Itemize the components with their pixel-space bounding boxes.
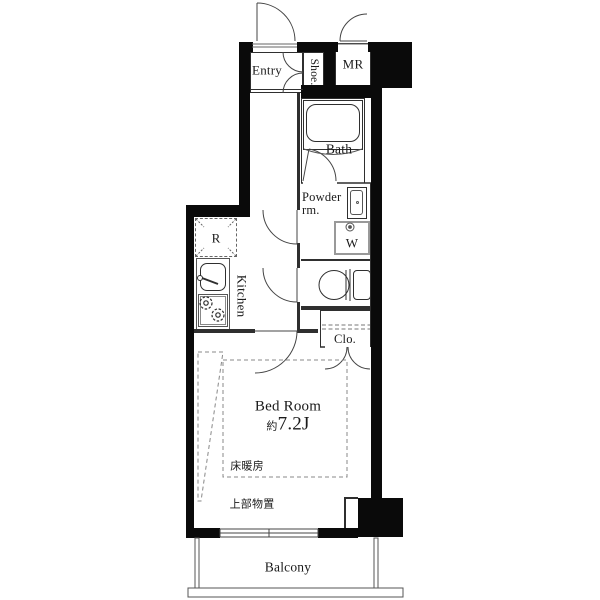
- balcony-sliding-door: [220, 529, 318, 537]
- shoe-closet-doors: [283, 52, 303, 93]
- overhead-storage-label: 上部物置: [230, 500, 275, 511]
- bath-label: Bath: [326, 142, 352, 156]
- powder-room-door: [263, 210, 297, 244]
- toilet-room-door: [263, 268, 297, 302]
- floor-heating-label: 床暖房: [230, 462, 264, 473]
- bedroom-size-value: 7.2J: [278, 414, 310, 435]
- meter-room-door: [338, 14, 368, 44]
- bedroom-size-label: 約7.2J: [266, 415, 309, 434]
- meter-room-label: MR: [343, 58, 364, 71]
- powder-room-label: Powder rm.: [302, 191, 341, 217]
- bedroom-size-prefix: 約: [266, 421, 277, 433]
- washer-tap-icon: [346, 223, 354, 231]
- washer-label: W: [346, 237, 358, 250]
- overhead-storage-area: [198, 352, 223, 501]
- kitchen-label: Kitchen: [236, 275, 249, 318]
- bedroom-label: Bed Room: [255, 400, 321, 415]
- kitchen-faucet-icon: [198, 276, 219, 285]
- floor-plan: Entry Shoe. MR Bath Powder rm. W R Kitch…: [0, 0, 600, 600]
- shoe-closet-label: Shoe.: [307, 59, 319, 86]
- bedroom-door: [255, 331, 297, 373]
- plan-linework: [0, 0, 600, 600]
- refrigerator-label: R: [212, 232, 221, 245]
- powder-room-label-line2: rm.: [302, 204, 341, 217]
- toilet-icon: [319, 269, 350, 301]
- balcony-label: Balcony: [265, 560, 311, 574]
- entry-label: Entry: [252, 64, 282, 77]
- stove-burners-icon: [200, 297, 224, 321]
- closet-label: Clo.: [334, 333, 356, 346]
- entry-door: [252, 3, 297, 47]
